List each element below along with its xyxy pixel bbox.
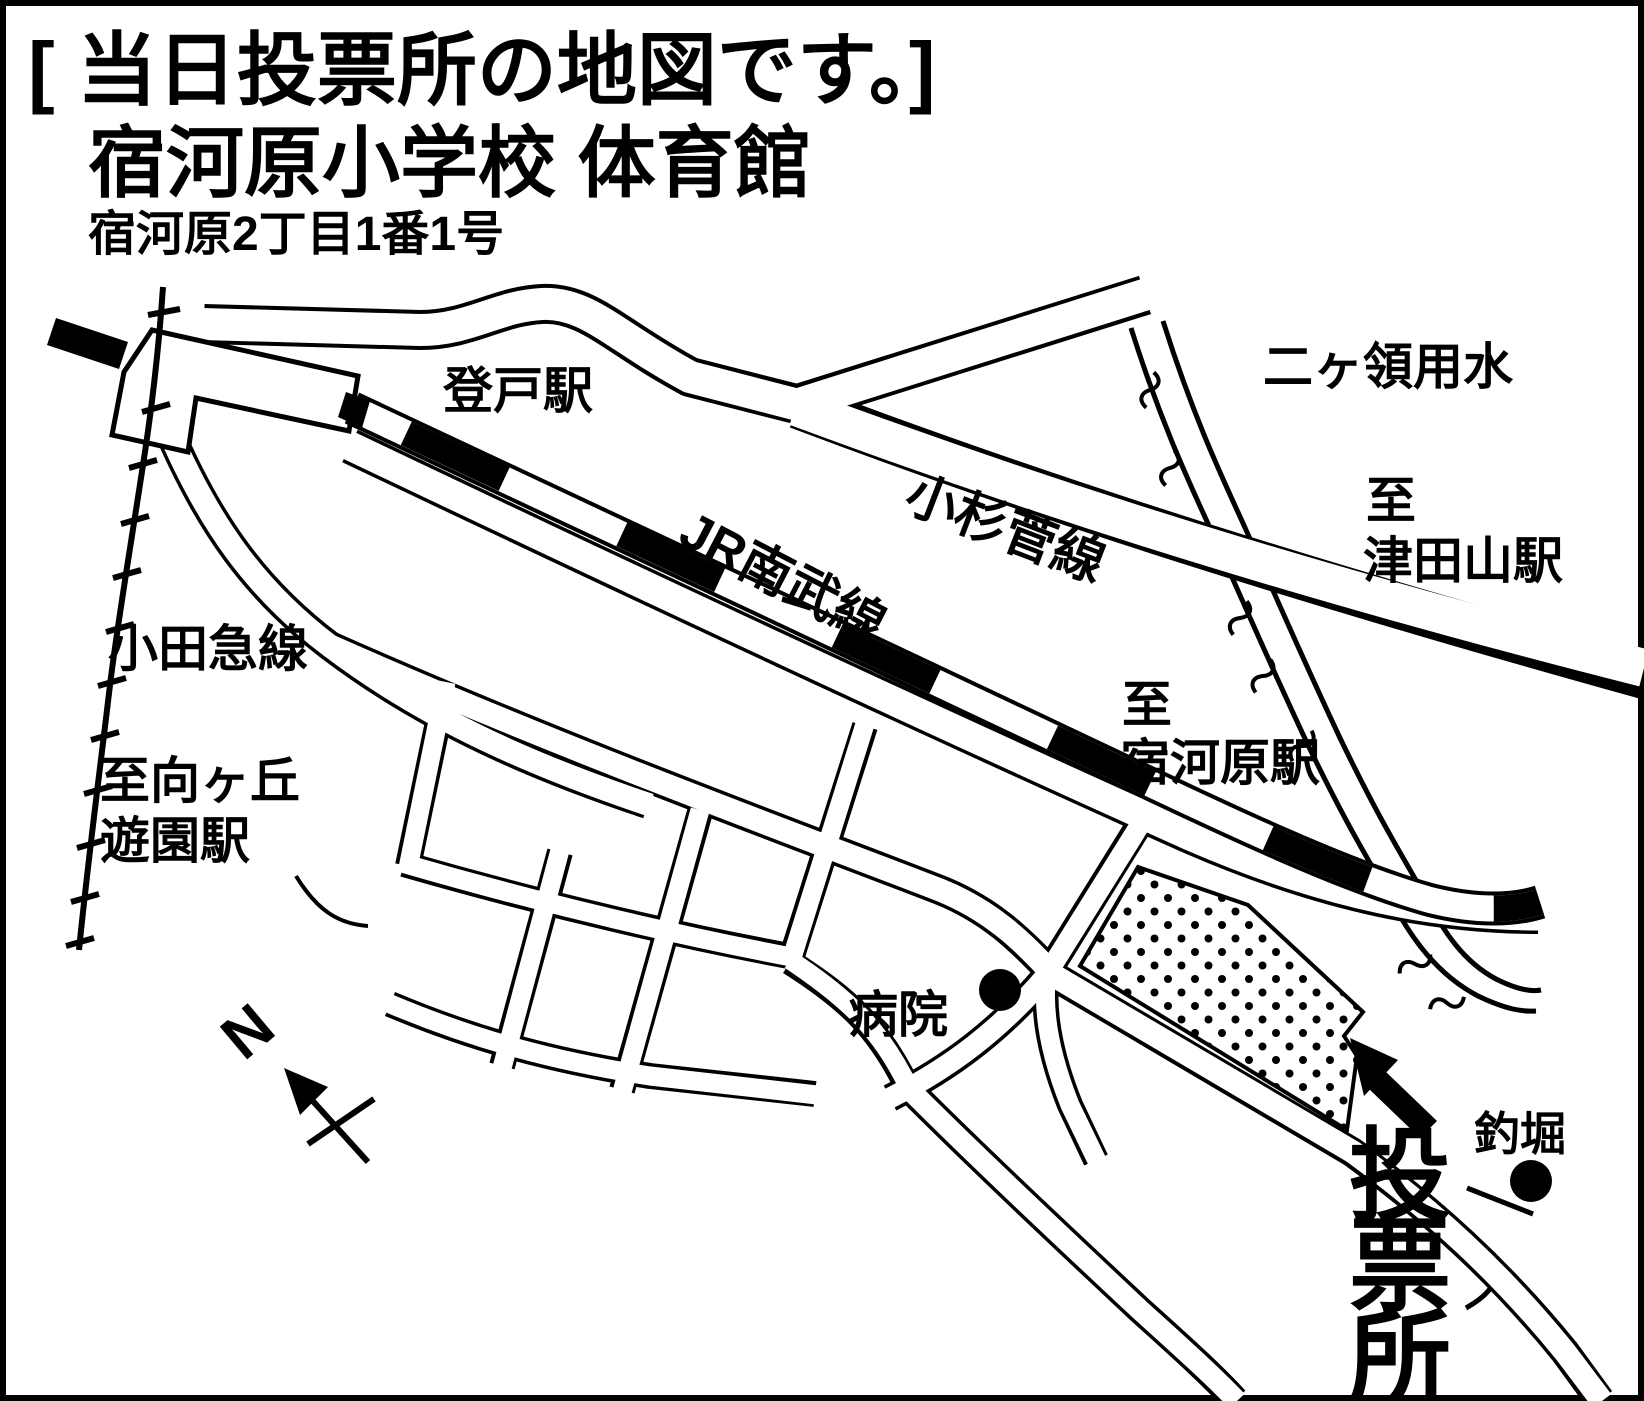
tsudayama-station-label: 津田山駅	[1363, 533, 1563, 589]
hospital-dot-marker	[979, 969, 1021, 1011]
page-title: [ 当日投票所の地図です。]	[28, 26, 936, 115]
fishing-pond-dot-marker	[1510, 1160, 1552, 1202]
fishing-pond-label: 釣堀	[1474, 1108, 1566, 1160]
venue-name: 宿河原小学校 体育館	[88, 119, 812, 207]
to-tsudayama-prefix: 至	[1366, 473, 1416, 529]
to-mukogaoka-label-line1: 至向ヶ丘	[100, 753, 300, 809]
to-mukogaoka-label-line2: 遊園駅	[100, 813, 250, 869]
polling-station-label: 投 票 所	[1349, 1120, 1451, 1401]
polling-char-3: 所	[1349, 1302, 1451, 1401]
map-canvas: N [ 当日投票所の地図です。] 宿河原小学校 体育館 宿河原2丁目1番1号 登…	[0, 0, 1644, 1401]
noborito-station-label: 登戸駅	[442, 363, 593, 419]
to-shukugawara-prefix: 至	[1122, 677, 1172, 733]
shukugawara-station-label: 宿河原駅	[1120, 735, 1320, 791]
nikaryo-canal-label: 二ヶ領用水	[1263, 339, 1514, 395]
venue-address: 宿河原2丁目1番1号	[88, 208, 504, 261]
odakyu-line-label: 小田急線	[108, 621, 308, 677]
polling-place-map-page: N [ 当日投票所の地図です。] 宿河原小学校 体育館 宿河原2丁目1番1号 登…	[0, 0, 1644, 1401]
hospital-label: 病院	[848, 987, 948, 1043]
